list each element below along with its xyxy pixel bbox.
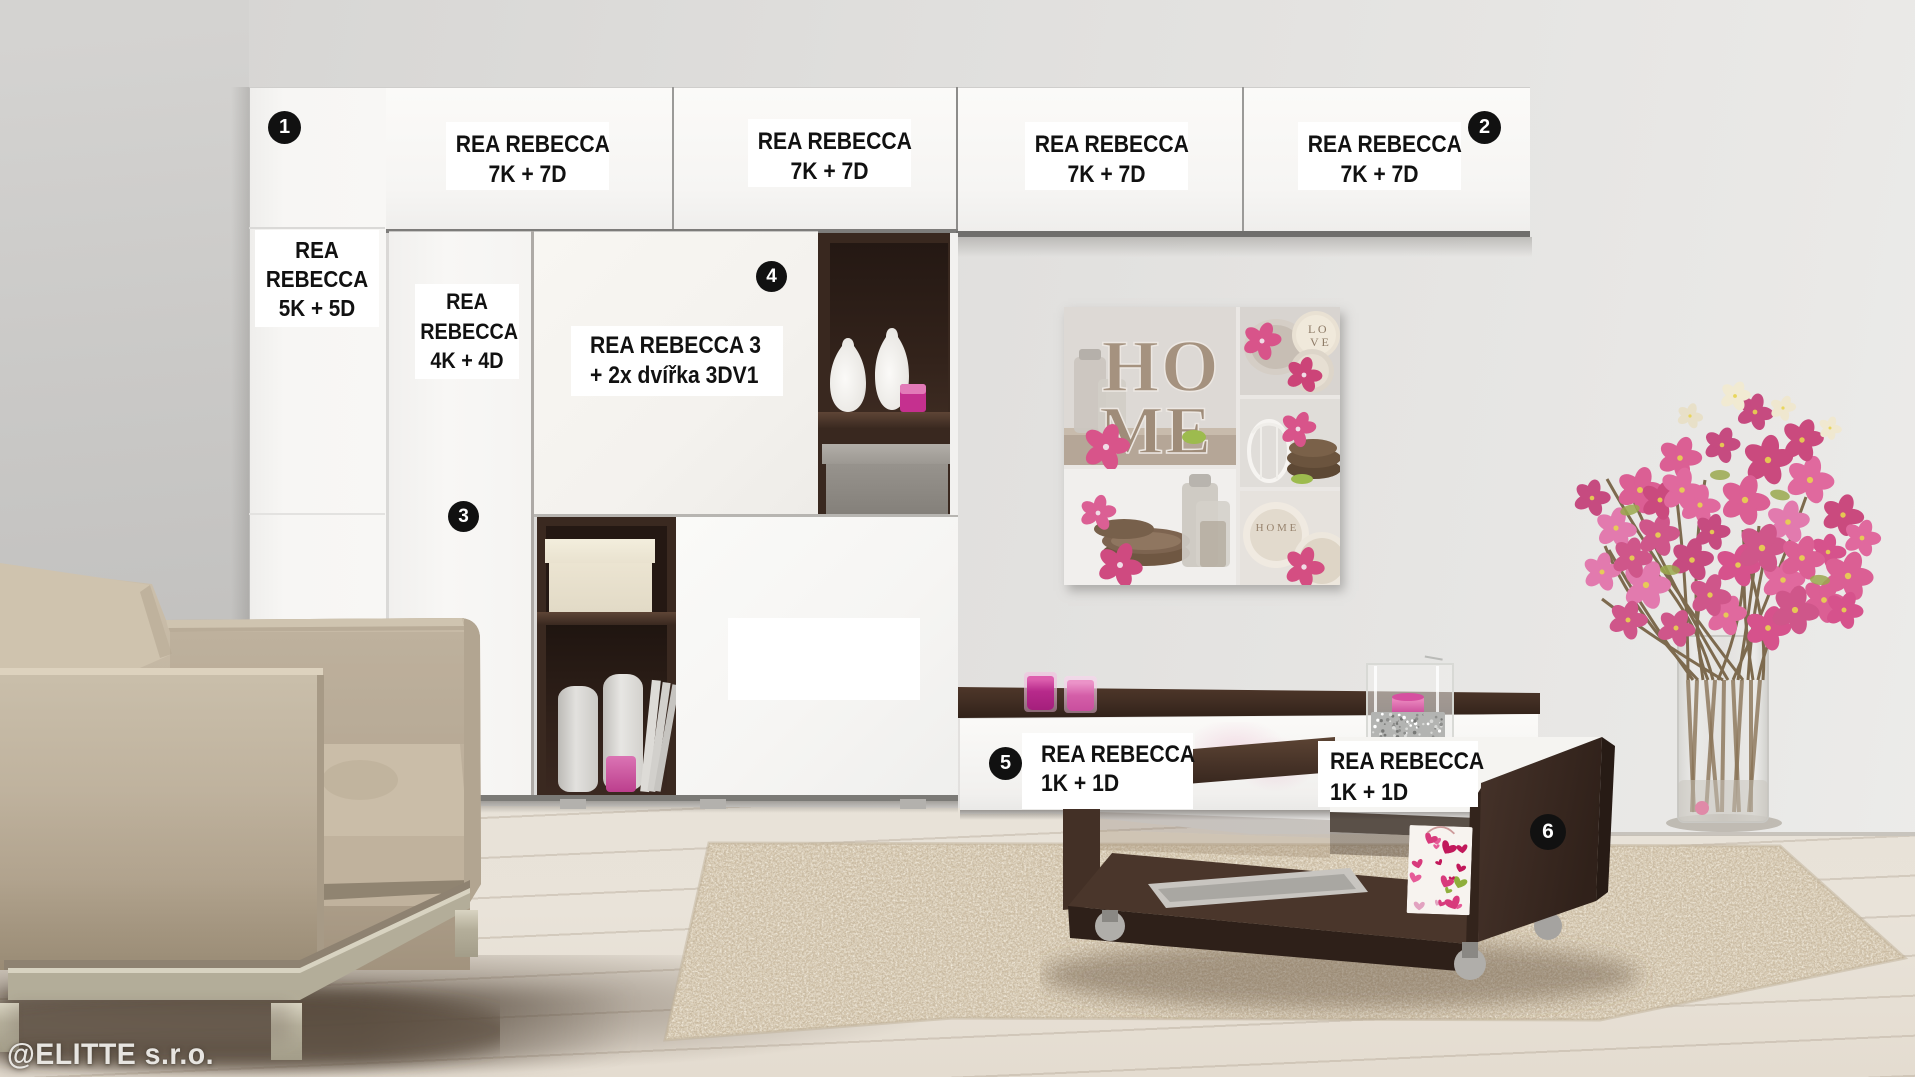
- svg-text:H O M E: H O M E: [1256, 522, 1297, 534]
- svg-text:V E: V E: [1310, 335, 1329, 349]
- svg-text:L O: L O: [1308, 322, 1327, 336]
